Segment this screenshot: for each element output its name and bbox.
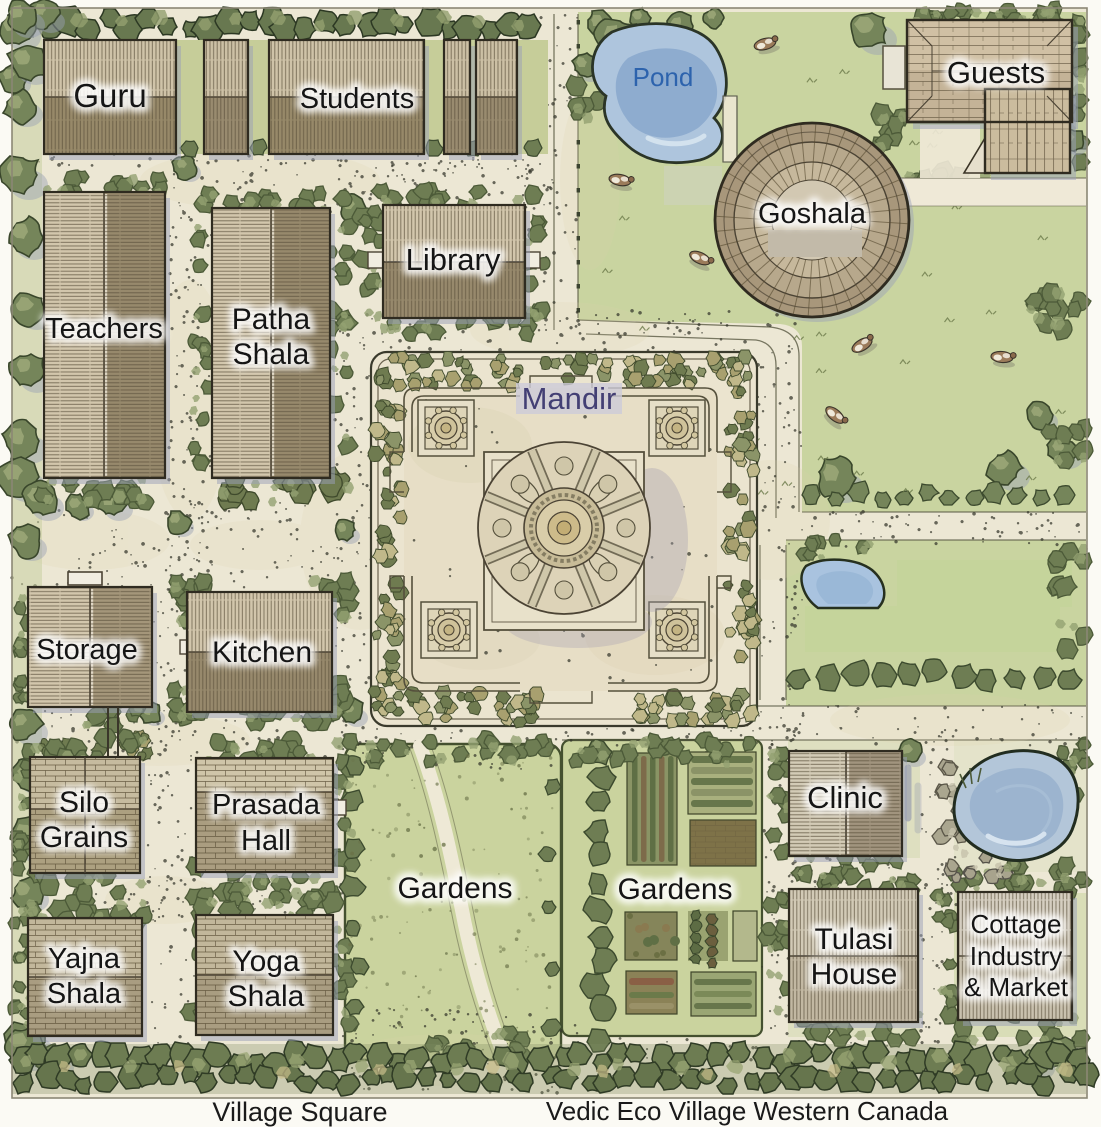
svg-text:Guests: Guests — [947, 55, 1045, 90]
svg-text:Kitchen: Kitchen — [212, 636, 312, 669]
svg-text:Hall: Hall — [241, 825, 291, 857]
svg-text:Library: Library — [406, 242, 501, 277]
svg-text:House: House — [811, 958, 898, 991]
svg-text:Pond: Pond — [633, 62, 694, 92]
svg-text:Gardens: Gardens — [397, 872, 512, 905]
svg-text:Teachers: Teachers — [45, 313, 163, 345]
svg-text:Grains: Grains — [40, 821, 128, 854]
svg-text:Vedic Eco Village Western Cana: Vedic Eco Village Western Canada — [546, 1096, 949, 1126]
svg-text:Clinic: Clinic — [807, 780, 883, 815]
svg-text:Mandir: Mandir — [522, 381, 617, 416]
svg-text:Shala: Shala — [233, 338, 310, 371]
svg-text:Industry: Industry — [970, 941, 1063, 971]
svg-text:Patha: Patha — [232, 303, 311, 336]
svg-text:Yoga: Yoga — [232, 945, 300, 978]
svg-text:Yajna: Yajna — [48, 943, 121, 975]
svg-text:Shala: Shala — [228, 980, 305, 1013]
svg-text:Prasada: Prasada — [212, 789, 321, 821]
svg-text:Goshala: Goshala — [758, 198, 867, 230]
svg-text:Village Square: Village Square — [212, 1097, 387, 1127]
svg-text:Gardens: Gardens — [617, 873, 732, 906]
svg-text:Shala: Shala — [47, 978, 122, 1010]
svg-text:Storage: Storage — [36, 634, 138, 666]
svg-text:Silo: Silo — [59, 786, 109, 819]
svg-text:Tulasi: Tulasi — [815, 923, 894, 956]
svg-text:Students: Students — [300, 83, 414, 115]
svg-text:Cottage: Cottage — [970, 909, 1061, 939]
svg-text:& Market: & Market — [964, 972, 1069, 1002]
svg-text:Guru: Guru — [73, 77, 146, 114]
